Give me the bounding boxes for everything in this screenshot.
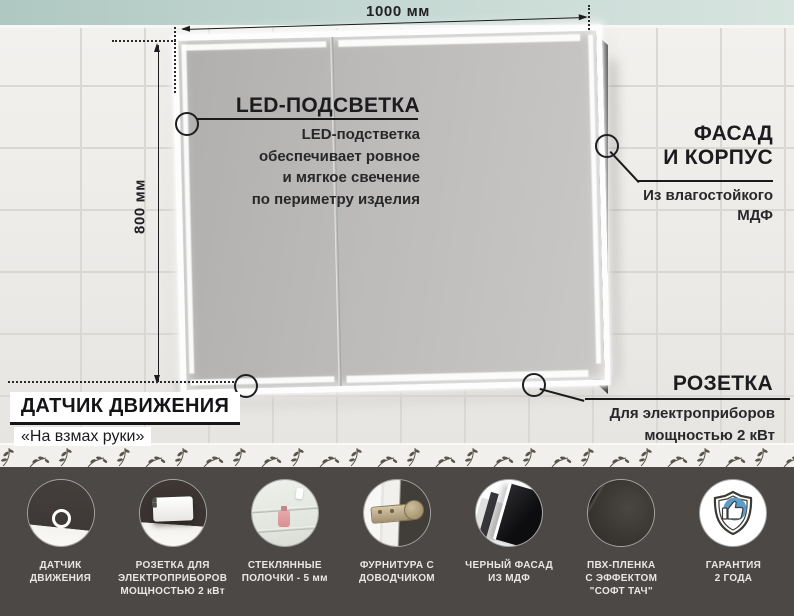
dotted-extension-right [588,5,590,30]
socket-note-title: РОЗЕТКА [573,372,773,396]
width-dimension-label: 1000 мм [343,3,453,20]
sensor-note-title: ДАТЧИК ДВИЖЕНИЯ [10,392,240,425]
bottle-cap [281,506,287,511]
facade-note-desc: Из влагостойкого МДФ [600,186,773,226]
feature-glass-shelves: СТЕКЛЯННЫЕ ПОЛОЧКИ - 5 мм [229,480,340,616]
feature-pvc-film: ПВХ-ПЛЕНКА С ЭФФЕКТОМ "СОФТ ТАЧ" [566,480,677,616]
height-dimension-label: 800 мм [132,165,149,249]
led-note-desc: LED-подстветка обеспечивает ровное и мяг… [180,124,420,210]
power-socket-icon [140,480,206,546]
feature-label: ЧЕРНЫЙ ФАСАД ИЗ МДФ [454,559,565,585]
sensor-ring [52,509,71,528]
dotted-extension-top-left [174,27,176,93]
feature-power-socket: РОЗЕТКА ДЛЯ ЭЛЕКТРОПРИБОРОВ МОЩНОСТЬЮ 2 … [117,480,228,616]
warranty-shield-icon [710,489,756,537]
feature-warranty: ГАРАНТИЯ 2 ГОДА [678,480,789,616]
dotted-extension-top [112,40,176,42]
mirror-cabinet-front [172,24,611,395]
feature-label: РОЗЕТКА ДЛЯ ЭЛЕКТРОПРИБОРОВ МОЩНОСТЬЮ 2 … [117,559,228,598]
socket-note-desc: Для электроприборов мощностью 2 кВт [578,403,775,447]
led-strip-top-left [182,41,326,51]
arrow-left-icon [181,25,190,31]
product-infographic: 1000 мм 800 мм LED-ПОДСВЕТКА LED-подстве… [0,0,794,616]
height-dimension-line [158,45,159,382]
socket-slot [152,503,156,508]
feature-soft-close-hinge: ФУРНИТУРА С ДОВОДЧИКОМ [341,480,452,616]
feature-motion-sensor: ДАТЧИК ДВИЖЕНИЯ [5,480,116,616]
socket-callout-dot [522,373,546,397]
dotted-extension-bottom [8,381,234,383]
door-seam [330,37,342,386]
feature-label: ФУРНИТУРА С ДОВОДЧИКОМ [341,559,452,585]
feature-black-facade: ЧЕРНЫЙ ФАСАД ИЗ МДФ [454,480,565,616]
feature-label: ГАРАНТИЯ 2 ГОДА [678,559,789,585]
facade-note-title: ФАСАД И КОРПУС [600,122,773,170]
features-bar: ДАТЧИК ДВИЖЕНИЯ РОЗЕТКА ДЛЯ ЭЛЕКТРОПРИБО… [0,467,794,616]
black-facade-icon [476,480,542,546]
pvc-film-icon [588,480,654,546]
shelf-clip [295,488,303,500]
black-panel [493,483,542,546]
soft-close-hinge-icon [364,480,430,546]
feature-label: СТЕКЛЯННЫЕ ПОЛОЧКИ - 5 мм [229,559,340,585]
led-strip-bottom-right [346,370,588,383]
arrow-right-icon [579,13,588,19]
feature-label: ДАТЧИК ДВИЖЕНИЯ [5,559,116,585]
glass-shelf-icon [252,480,318,546]
feature-label: ПВХ-ПЛЕНКА С ЭФФЕКТОМ "СОФТ ТАЧ" [566,559,677,598]
hinge-screw [378,510,382,514]
motion-sensor-icon [28,480,94,546]
led-strip-top-right [338,34,580,47]
hinge-cup [404,500,424,520]
facade-callout-underline [637,180,773,182]
bottle [278,510,290,527]
led-note: LED-ПОДСВЕТКА LED-подстветка обеспечивае… [180,94,420,210]
hinge-screw [390,509,394,513]
warranty-icon [700,480,766,546]
sensor-note-subtitle: «На взмах руки» [14,427,151,446]
led-note-title: LED-ПОДСВЕТКА [180,94,420,118]
socket-body [152,496,193,521]
arrow-up-icon [154,43,160,52]
socket-callout-underline [585,398,790,400]
